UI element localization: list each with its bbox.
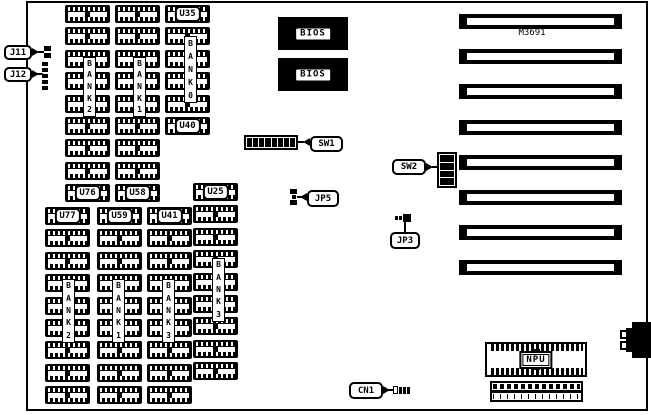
chipset-marking: M3691	[492, 28, 572, 38]
switch-position-2	[253, 138, 258, 147]
bank-label-bank2-lower: BANK2	[62, 279, 75, 343]
chip-label-u77: U77	[54, 208, 80, 224]
expansion-slot-4	[459, 120, 622, 135]
chip-body	[196, 347, 235, 352]
memory-chip-bank2-upper-8	[65, 162, 110, 180]
chip-body	[196, 212, 235, 217]
switch-position-3	[259, 138, 264, 147]
switch-position-3	[440, 171, 454, 178]
expansion-slot-5	[459, 155, 622, 170]
connector-band	[492, 390, 581, 393]
slot-opening	[467, 124, 614, 131]
memory-chip-bank3-lower-b-1: U25	[193, 183, 238, 201]
memory-chip-bank2-lower-3	[45, 252, 90, 270]
bank-label-bank3-lower-b: BANK3	[212, 258, 225, 322]
memory-chip-bank3-lower-a-7	[147, 341, 192, 359]
bios-2-label: BIOS	[295, 68, 331, 81]
switch-position-4	[265, 138, 270, 147]
chip-body	[100, 259, 139, 264]
memory-chip-bank2-upper-1	[65, 5, 110, 23]
sw1-label: SW1	[310, 136, 343, 152]
memory-chip-bank1-upper-7	[115, 139, 160, 157]
memory-chip-bank1-lower-7	[97, 341, 142, 359]
chip-body	[196, 369, 235, 374]
npu-label-box: NPU	[519, 351, 552, 369]
expansion-slot-3	[459, 84, 622, 99]
chip-body	[68, 169, 107, 174]
chip-body	[48, 393, 87, 398]
memory-chip-bank1-upper-2	[115, 27, 160, 45]
chip-body	[196, 324, 235, 329]
switch-position-7	[284, 138, 289, 147]
slot-opening	[467, 159, 614, 166]
chip-label-u58: U58	[124, 185, 150, 201]
memory-chip-bank3-lower-b-8	[193, 340, 238, 358]
memory-chip-bank1-lower-2	[97, 229, 142, 247]
chip-body	[118, 12, 157, 17]
expansion-slot-7	[459, 225, 622, 240]
chip-body	[150, 393, 189, 398]
chip-body	[68, 12, 107, 17]
expansion-slot-6	[459, 190, 622, 205]
cn1-header	[393, 386, 410, 394]
chip-body	[100, 348, 139, 353]
expansion-slot-8	[459, 260, 622, 275]
memory-chip-bank2-lower-2	[45, 229, 90, 247]
bank-label-bank3-lower-a: BANK3	[162, 279, 175, 343]
chip-body	[150, 371, 189, 376]
chip-body	[150, 236, 189, 241]
chip-body	[196, 235, 235, 240]
memory-chip-bank1-upper-6	[115, 117, 160, 135]
memory-chip-bank3-lower-a-1: U41	[147, 207, 192, 225]
chip-label-u35: U35	[174, 6, 200, 22]
keyboard-connector	[632, 322, 651, 358]
chip-body	[100, 393, 139, 398]
memory-chip-bank2-lower-9	[45, 386, 90, 404]
chip-body	[150, 259, 189, 264]
switch-position-8	[290, 138, 295, 147]
chip-label-u25: U25	[202, 184, 228, 200]
keyboard-pin-1	[620, 330, 628, 339]
switch-position-5	[272, 138, 277, 147]
cn1-leader-line	[388, 389, 393, 391]
memory-chip-bank3-lower-b-9	[193, 362, 238, 380]
slot-opening	[467, 264, 614, 271]
slot-opening	[467, 229, 614, 236]
chip-label-u59: U59	[106, 208, 132, 224]
j11-label: J11	[4, 45, 32, 60]
bios-chip-1: BIOS	[278, 17, 348, 50]
j11-header	[44, 46, 51, 58]
chip-body	[48, 259, 87, 264]
chip-body	[48, 236, 87, 241]
memory-chip-bank3-lower-b-2	[193, 205, 238, 223]
memory-chip-bank2-lower-1: U77	[45, 207, 90, 225]
sw1-pointer-icon	[303, 138, 310, 146]
connector-socket-row	[493, 394, 580, 399]
switch-position-4	[440, 178, 454, 185]
chip-body	[68, 146, 107, 151]
switch-position-1	[440, 155, 454, 162]
expansion-slot-2	[459, 49, 622, 64]
memory-chip-bank2-upper-9: U76	[65, 184, 110, 202]
memory-chip-bank2-upper-6	[65, 117, 110, 135]
bank-label-bank2-upper: BANK2	[83, 57, 96, 117]
j12-header	[42, 62, 48, 90]
memory-chip-bank3-lower-a-2	[147, 229, 192, 247]
slot-opening	[467, 18, 614, 25]
chip-body	[100, 371, 139, 376]
sw1-dip-switch	[244, 135, 298, 150]
memory-chip-bank3-lower-a-3	[147, 252, 192, 270]
memory-chip-bank0-upper-1: U35	[165, 5, 210, 23]
keyboard-pin-2	[620, 341, 628, 350]
memory-chip-bank1-upper-9: U58	[115, 184, 160, 202]
memory-chip-bank2-lower-8	[45, 364, 90, 382]
slot-opening	[467, 88, 614, 95]
bank-label-bank0-upper: BANK0	[184, 36, 197, 103]
memory-chip-bank3-lower-a-8	[147, 364, 192, 382]
chip-body	[100, 236, 139, 241]
jp3-label: JP3	[390, 232, 420, 249]
bottom-edge-connector	[490, 381, 583, 402]
connector-pin-row	[493, 384, 580, 389]
sw2-dip-switch	[437, 152, 457, 188]
memory-chip-bank1-lower-3	[97, 252, 142, 270]
switch-position-2	[440, 163, 454, 170]
sw2-label: SW2	[392, 159, 426, 175]
j12-leader-line	[37, 73, 43, 75]
chip-body	[118, 146, 157, 151]
memory-chip-bank2-upper-7	[65, 139, 110, 157]
bank-label-bank1-lower: BANK1	[112, 279, 125, 343]
bios-chip-2: BIOS	[278, 58, 348, 91]
jp5-label: JP5	[307, 190, 339, 207]
expansion-slot-1	[459, 14, 622, 29]
memory-chip-bank3-lower-a-9	[147, 386, 192, 404]
motherboard-diagram: J11 J12 BIOS BIOS M3691 SW1 SW2 JP5	[0, 0, 651, 415]
switch-position-6	[278, 138, 283, 147]
chip-label-u41: U41	[156, 208, 182, 224]
sw2-leader-line	[432, 166, 437, 168]
chip-body	[118, 124, 157, 129]
npu-socket: NPU	[485, 342, 587, 377]
chip-body	[68, 34, 107, 39]
memory-chip-bank1-lower-9	[97, 386, 142, 404]
cn1-label: CN1	[349, 382, 383, 399]
memory-chip-bank1-upper-8	[115, 162, 160, 180]
chip-body	[150, 348, 189, 353]
memory-chip-bank2-lower-7	[45, 341, 90, 359]
j11-leader-line	[38, 51, 44, 53]
chip-body	[48, 348, 87, 353]
chip-body	[118, 169, 157, 174]
bank-label-bank1-upper: BANK1	[133, 57, 146, 117]
switch-position-1	[247, 138, 252, 147]
memory-chip-bank2-upper-2	[65, 27, 110, 45]
jp5-pointer-icon	[300, 193, 307, 201]
j12-label: J12	[4, 67, 32, 82]
npu-label: NPU	[522, 354, 549, 366]
memory-chip-bank1-lower-8	[97, 364, 142, 382]
chip-body	[68, 124, 107, 129]
chip-label-u40: U40	[174, 118, 200, 134]
jp3-jumper	[395, 214, 411, 222]
jp5-jumper	[290, 189, 297, 205]
memory-chip-bank0-upper-6: U40	[165, 117, 210, 135]
chip-body	[118, 34, 157, 39]
memory-chip-bank1-upper-1	[115, 5, 160, 23]
chip-label-u76: U76	[74, 185, 100, 201]
bios-1-label: BIOS	[295, 27, 331, 40]
memory-chip-bank1-lower-1: U59	[97, 207, 142, 225]
slot-opening	[467, 194, 614, 201]
memory-chip-bank3-lower-b-3	[193, 228, 238, 246]
slot-opening	[467, 53, 614, 60]
chip-body	[48, 371, 87, 376]
